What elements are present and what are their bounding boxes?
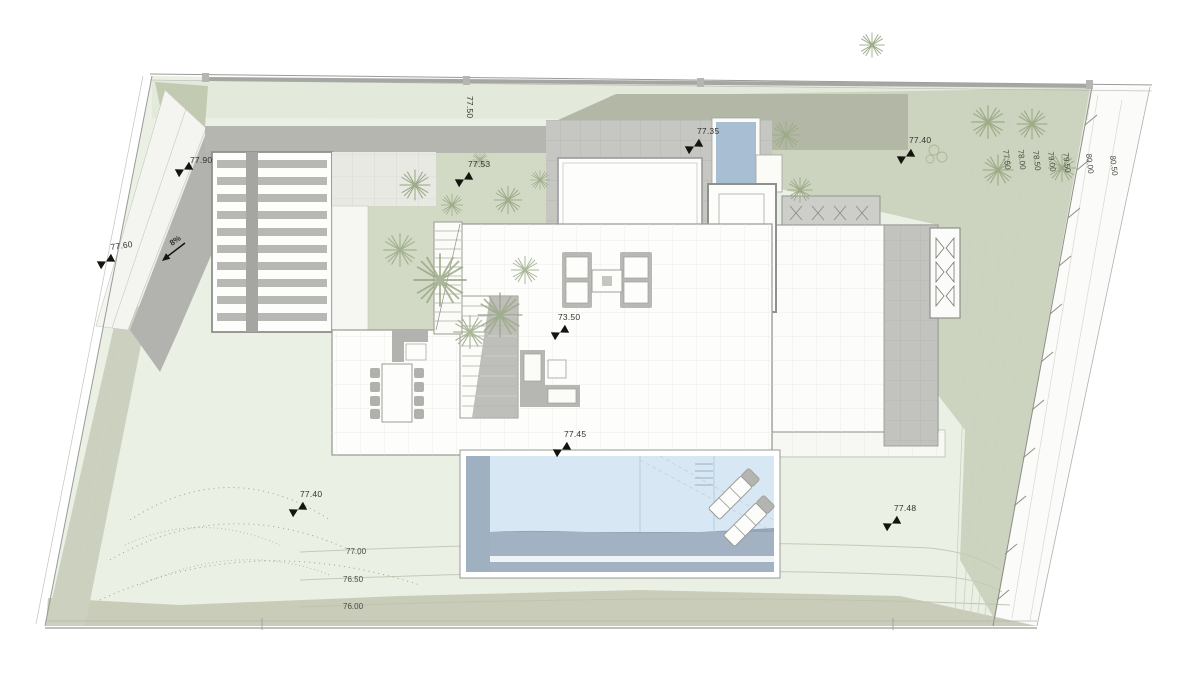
contour-label-76-00: 76.00: [343, 602, 364, 611]
spot-elevation-77-45: 77.45: [564, 429, 586, 439]
spot-elevation-77-53: 77.53: [468, 159, 490, 169]
site-plan-screenshot: 77.90 77.60 77.53 77.35 77.40 73.50 77.4…: [0, 0, 1200, 691]
spot-elevation-77-40-ne: 77.40: [909, 135, 931, 145]
corridor-west: [332, 206, 368, 332]
spot-elevation-77-35: 77.35: [697, 126, 719, 136]
pool-wall-band: [466, 456, 490, 572]
lap-pool: [716, 122, 756, 186]
contour-label-76-50: 76.50: [343, 575, 364, 584]
contour-label-77-00: 77.00: [346, 547, 367, 556]
spot-elevation-73-50: 73.50: [558, 312, 580, 322]
roof-upper-west: [558, 158, 702, 232]
spot-elevation-77-40-sw: 77.40: [300, 489, 322, 499]
skylight-strip: [782, 196, 880, 228]
garden-wall-band: [205, 126, 558, 153]
main-pool: [460, 450, 780, 578]
site-plan-drawing: 77.90 77.60 77.53 77.35 77.40 73.50 77.4…: [0, 0, 1200, 691]
louver-element: [930, 228, 960, 318]
street-level-label: 77.50: [465, 96, 475, 118]
spot-elevation-77-48: 77.48: [894, 503, 916, 513]
pergola: [212, 152, 332, 332]
spot-elevation-77-90: 77.90: [190, 155, 212, 165]
